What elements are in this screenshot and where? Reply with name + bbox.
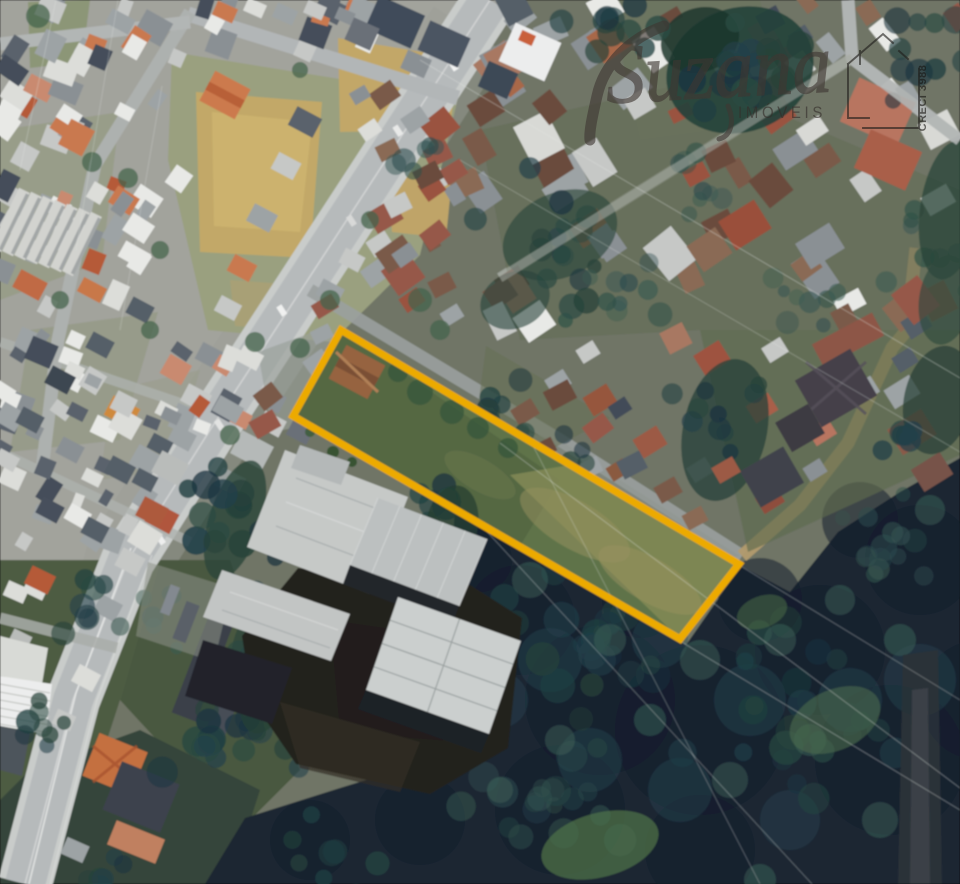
svg-text:CRECI 3988: CRECI 3988 xyxy=(917,65,929,132)
svg-text:IMÓVEIS: IMÓVEIS xyxy=(738,103,826,122)
